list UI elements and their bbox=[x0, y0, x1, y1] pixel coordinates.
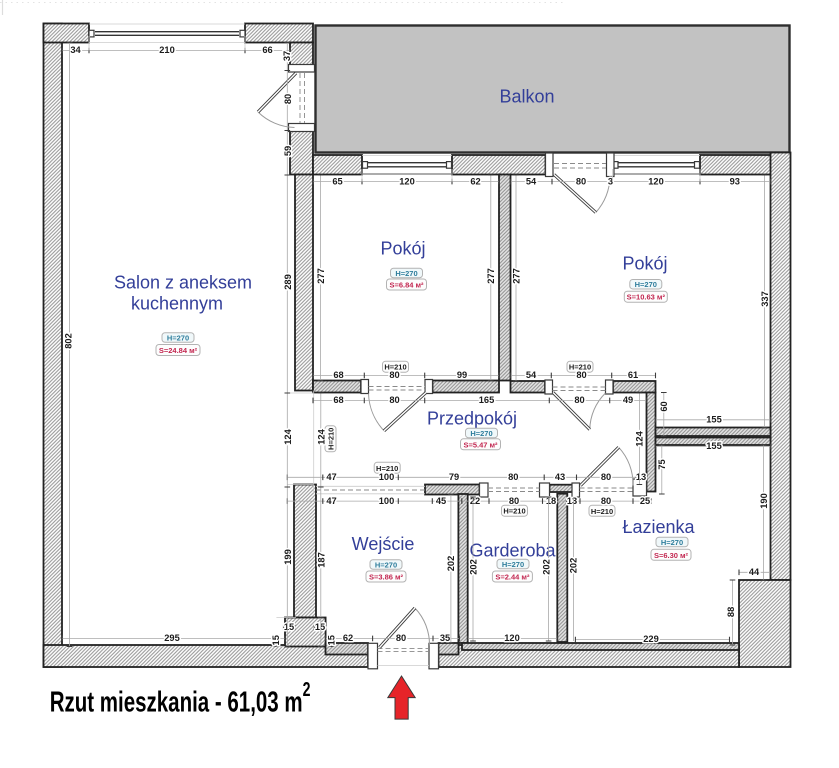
svg-text:34: 34 bbox=[70, 45, 81, 55]
svg-text:S=3.86 м²: S=3.86 м² bbox=[369, 573, 404, 582]
svg-text:277: 277 bbox=[486, 268, 496, 284]
svg-text:79: 79 bbox=[449, 472, 459, 482]
svg-text:15: 15 bbox=[284, 622, 294, 632]
svg-text:59: 59 bbox=[283, 146, 293, 156]
svg-text:155: 155 bbox=[706, 415, 722, 425]
svg-text:65: 65 bbox=[332, 176, 342, 186]
svg-text:15: 15 bbox=[271, 635, 281, 645]
svg-text:80: 80 bbox=[576, 370, 586, 380]
svg-text:289: 289 bbox=[283, 274, 293, 290]
svg-text:S=10.63 м²: S=10.63 м² bbox=[627, 293, 666, 302]
svg-text:202: 202 bbox=[468, 559, 478, 575]
svg-text:277: 277 bbox=[316, 268, 326, 284]
svg-text:120: 120 bbox=[504, 633, 520, 643]
svg-text:80: 80 bbox=[389, 395, 399, 405]
svg-text:Przedpokój: Przedpokój bbox=[427, 409, 517, 429]
svg-text:54: 54 bbox=[526, 176, 537, 186]
svg-text:13: 13 bbox=[567, 496, 577, 506]
svg-text:68: 68 bbox=[333, 395, 343, 405]
svg-text:80: 80 bbox=[396, 633, 406, 643]
svg-text:S=6.84 м²: S=6.84 м² bbox=[389, 281, 424, 290]
svg-text:202: 202 bbox=[568, 558, 578, 574]
svg-text:49: 49 bbox=[623, 395, 633, 405]
svg-text:H=270: H=270 bbox=[167, 334, 189, 343]
svg-text:47: 47 bbox=[326, 496, 336, 506]
svg-text:75: 75 bbox=[657, 459, 667, 469]
svg-text:Wejście: Wejście bbox=[352, 534, 415, 554]
svg-text:60: 60 bbox=[659, 401, 669, 411]
svg-text:H=270: H=270 bbox=[502, 560, 524, 569]
svg-text:15: 15 bbox=[326, 635, 336, 645]
svg-text:H=270: H=270 bbox=[635, 280, 657, 289]
svg-text:S=2.44 м²: S=2.44 м² bbox=[495, 573, 530, 582]
svg-text:H=270: H=270 bbox=[470, 429, 492, 438]
svg-text:93: 93 bbox=[730, 176, 740, 186]
svg-text:Pokój: Pokój bbox=[622, 254, 667, 274]
svg-text:99: 99 bbox=[457, 370, 467, 380]
svg-text:kuchennym: kuchennym bbox=[131, 294, 223, 314]
svg-text:S=5.47 м²: S=5.47 м² bbox=[463, 440, 498, 449]
svg-text:802: 802 bbox=[63, 333, 73, 349]
svg-text:100: 100 bbox=[379, 472, 395, 482]
svg-text:62: 62 bbox=[470, 176, 480, 186]
svg-text:124: 124 bbox=[316, 428, 326, 444]
svg-text:15: 15 bbox=[315, 622, 325, 632]
svg-text:H=270: H=270 bbox=[661, 538, 683, 547]
svg-text:H=210: H=210 bbox=[326, 428, 335, 450]
svg-text:124: 124 bbox=[283, 428, 293, 444]
svg-text:S=6.30 м²: S=6.30 м² bbox=[654, 551, 689, 560]
svg-text:190: 190 bbox=[759, 493, 769, 509]
svg-text:25: 25 bbox=[640, 496, 650, 506]
svg-text:80: 80 bbox=[574, 395, 584, 405]
svg-text:202: 202 bbox=[446, 556, 456, 572]
svg-text:H=210: H=210 bbox=[503, 507, 525, 516]
svg-text:54: 54 bbox=[526, 370, 537, 380]
svg-text:210: 210 bbox=[159, 45, 175, 55]
svg-text:295: 295 bbox=[164, 633, 180, 643]
svg-text:202: 202 bbox=[541, 559, 551, 575]
svg-text:61: 61 bbox=[628, 370, 638, 380]
svg-text:Pokój: Pokój bbox=[380, 239, 425, 259]
svg-text:277: 277 bbox=[511, 268, 521, 284]
svg-text:124: 124 bbox=[635, 430, 645, 446]
svg-text:37: 37 bbox=[282, 51, 292, 61]
svg-text:S=24.84 м²: S=24.84 м² bbox=[159, 346, 198, 355]
svg-text:80: 80 bbox=[601, 496, 611, 506]
svg-text:Balkon: Balkon bbox=[499, 87, 554, 107]
svg-text:66: 66 bbox=[262, 45, 272, 55]
svg-text:120: 120 bbox=[648, 176, 664, 186]
svg-text:Salon z aneksem: Salon z aneksem bbox=[114, 273, 252, 293]
svg-text:68: 68 bbox=[333, 370, 343, 380]
svg-text:80: 80 bbox=[283, 94, 293, 104]
svg-text:88: 88 bbox=[726, 607, 736, 617]
svg-text:80: 80 bbox=[576, 176, 586, 186]
svg-text:80: 80 bbox=[509, 496, 519, 506]
svg-text:80: 80 bbox=[508, 472, 518, 482]
svg-text:100: 100 bbox=[379, 496, 395, 506]
svg-text:80: 80 bbox=[389, 370, 399, 380]
svg-text:80: 80 bbox=[601, 472, 611, 482]
svg-text:Rzut mieszkania - 61,03 m2: Rzut mieszkania - 61,03 m2 bbox=[50, 677, 311, 718]
svg-text:165: 165 bbox=[479, 395, 495, 405]
svg-text:44: 44 bbox=[749, 567, 760, 577]
svg-text:199: 199 bbox=[283, 549, 293, 565]
svg-text:Garderoba: Garderoba bbox=[469, 541, 556, 561]
svg-text:43: 43 bbox=[555, 472, 565, 482]
svg-text:13: 13 bbox=[636, 472, 646, 482]
svg-text:62: 62 bbox=[343, 633, 353, 643]
svg-text:45: 45 bbox=[436, 496, 446, 506]
svg-text:H=270: H=270 bbox=[395, 269, 417, 278]
svg-text:155: 155 bbox=[706, 441, 722, 451]
svg-text:229: 229 bbox=[643, 634, 659, 644]
svg-text:187: 187 bbox=[316, 552, 326, 568]
svg-text:H=270: H=270 bbox=[375, 561, 397, 570]
svg-text:H=210: H=210 bbox=[591, 507, 613, 516]
svg-text:Łazienka: Łazienka bbox=[622, 517, 695, 537]
svg-text:120: 120 bbox=[399, 176, 415, 186]
svg-text:337: 337 bbox=[760, 291, 770, 307]
svg-text:47: 47 bbox=[326, 472, 336, 482]
svg-text:35: 35 bbox=[440, 633, 450, 643]
